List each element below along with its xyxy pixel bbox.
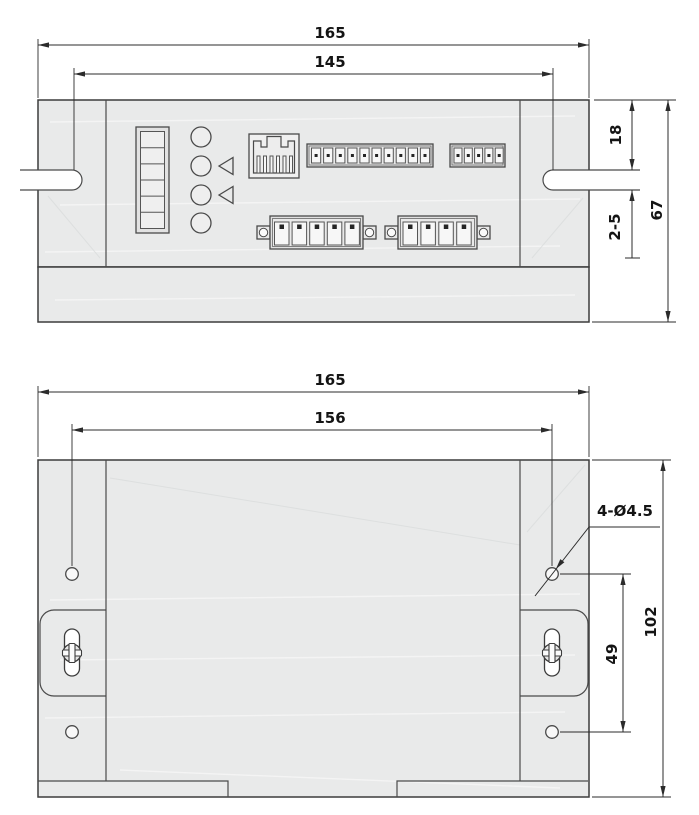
mounting-hole-bottom-right <box>546 726 559 739</box>
dim-front-slot-spacing: 145 <box>314 53 345 71</box>
dim-front-overall-height: 67 <box>648 200 666 221</box>
screw-slot-right <box>543 629 562 676</box>
front-base-plate <box>38 267 589 322</box>
terminal-block-motor-4pos[interactable] <box>385 216 490 249</box>
technical-drawing-page: 165 145 18 2-5 67 <box>0 0 699 815</box>
technical-drawing: 165 145 18 2-5 67 <box>0 0 699 815</box>
mount-ear-hole <box>387 228 395 236</box>
top-body <box>38 460 589 797</box>
rj45-port[interactable] <box>249 134 299 178</box>
front-mounting-slot-left <box>20 170 82 190</box>
led-2 <box>191 156 211 176</box>
screw-cross-icon <box>69 644 75 663</box>
mount-ear-hole <box>259 228 267 236</box>
dim-hole-callout: 4-Ø4.5 <box>597 502 653 520</box>
screw-cross-icon <box>549 644 555 663</box>
front-mounting-slot-right <box>543 170 640 190</box>
mount-ear-hole <box>365 228 373 236</box>
led-1 <box>191 127 211 147</box>
dim-front-overall-width: 165 <box>314 24 345 42</box>
dim-front-panel-thickness: 2-5 <box>606 213 624 240</box>
terminal-block-signal-10pos[interactable] <box>307 144 433 167</box>
mounting-hole-top-left <box>66 568 79 581</box>
screw-slot-left <box>63 629 82 676</box>
top-view: 165 156 4-Ø4.5 49 <box>38 371 671 797</box>
dim-top-hole-spacing-h: 156 <box>314 409 345 427</box>
dim-top-overall-width: 165 <box>314 371 345 389</box>
dip-switch[interactable] <box>136 127 169 233</box>
mounting-hole-bottom-left <box>66 726 79 739</box>
mount-ear-hole <box>479 228 487 236</box>
dim-top-hole-spacing-v: 49 <box>603 644 621 665</box>
terminal-block-power-5pos[interactable] <box>257 216 376 249</box>
led-3 <box>191 185 211 205</box>
dim-front-top-to-slot: 18 <box>607 125 625 146</box>
dim-top-overall-height: 102 <box>642 606 660 637</box>
front-view: 165 145 18 2-5 67 <box>20 24 676 322</box>
terminal-block-signal-5pos[interactable] <box>450 144 505 167</box>
led-4 <box>191 213 211 233</box>
